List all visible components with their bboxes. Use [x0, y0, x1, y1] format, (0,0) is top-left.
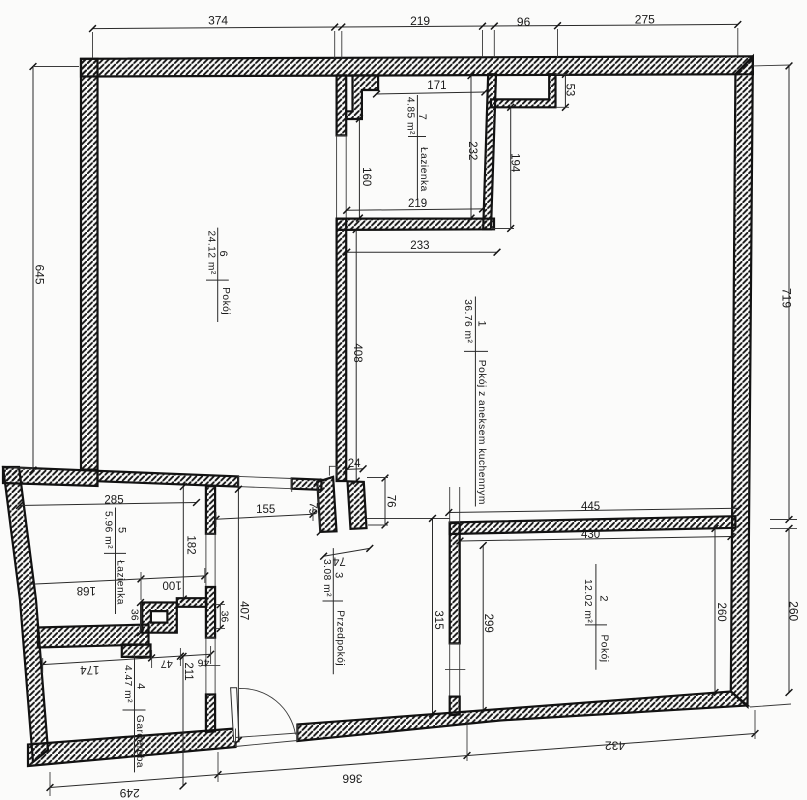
svg-text:74: 74 [332, 555, 345, 567]
svg-text:168: 168 [77, 584, 96, 596]
svg-text:24.12 m²: 24.12 m² [206, 230, 217, 274]
svg-text:12.02 m²: 12.02 m² [582, 579, 593, 623]
svg-text:719: 719 [780, 288, 794, 308]
svg-text:249: 249 [119, 786, 139, 800]
svg-text:4: 4 [134, 683, 146, 689]
svg-text:5: 5 [116, 527, 128, 533]
svg-text:1: 1 [475, 320, 487, 326]
svg-text:6: 6 [217, 250, 229, 256]
svg-text:155: 155 [256, 504, 275, 516]
svg-text:100: 100 [163, 579, 182, 591]
svg-text:53: 53 [563, 84, 575, 97]
svg-text:36.76 m²: 36.76 m² [462, 299, 473, 343]
svg-text:366: 366 [342, 772, 362, 786]
svg-text:Pokój: Pokój [220, 287, 231, 315]
svg-text:260: 260 [715, 603, 727, 622]
svg-text:Pokój z aneksem kuchennym: Pokój z aneksem kuchennym [476, 360, 487, 505]
svg-text:47: 47 [161, 657, 173, 669]
svg-text:160: 160 [360, 167, 372, 186]
svg-text:299: 299 [482, 614, 494, 633]
svg-text:645: 645 [33, 264, 47, 284]
svg-text:374: 374 [208, 14, 228, 28]
svg-text:24: 24 [348, 458, 361, 470]
svg-text:408: 408 [351, 343, 363, 362]
svg-text:275: 275 [635, 12, 655, 26]
svg-text:174: 174 [80, 663, 100, 675]
svg-text:46: 46 [198, 656, 210, 668]
svg-text:3: 3 [332, 572, 344, 578]
svg-text:36: 36 [218, 611, 230, 623]
svg-text:5.96 m²: 5.96 m² [103, 511, 114, 549]
svg-text:430: 430 [581, 529, 600, 541]
svg-text:Przedpokój: Przedpokój [335, 610, 346, 666]
svg-text:233: 233 [410, 240, 429, 252]
svg-text:432: 432 [605, 738, 625, 752]
svg-text:285: 285 [104, 495, 123, 507]
svg-text:3.08 m²: 3.08 m² [321, 559, 332, 597]
svg-text:232: 232 [466, 141, 478, 160]
svg-text:Łazienka: Łazienka [418, 147, 429, 192]
svg-text:407: 407 [237, 601, 249, 620]
svg-text:182: 182 [185, 535, 197, 554]
svg-text:79: 79 [306, 502, 319, 515]
svg-text:36: 36 [128, 609, 140, 621]
svg-text:315: 315 [432, 610, 444, 629]
svg-text:211: 211 [182, 662, 194, 680]
svg-text:260: 260 [787, 601, 801, 621]
svg-text:Pokój: Pokój [599, 635, 610, 663]
svg-text:76: 76 [384, 495, 396, 508]
svg-text:96: 96 [517, 15, 531, 29]
svg-text:4.47 m²: 4.47 m² [122, 665, 133, 703]
svg-text:2: 2 [598, 595, 610, 601]
svg-text:445: 445 [581, 501, 600, 513]
svg-text:171: 171 [427, 80, 446, 92]
svg-text:7: 7 [416, 114, 428, 120]
svg-text:Łazienka: Łazienka [115, 560, 126, 605]
svg-text:Garderoba: Garderoba [134, 715, 145, 768]
svg-text:219: 219 [410, 14, 430, 28]
svg-text:194: 194 [508, 153, 520, 173]
svg-text:4.85 m²: 4.85 m² [404, 97, 415, 135]
